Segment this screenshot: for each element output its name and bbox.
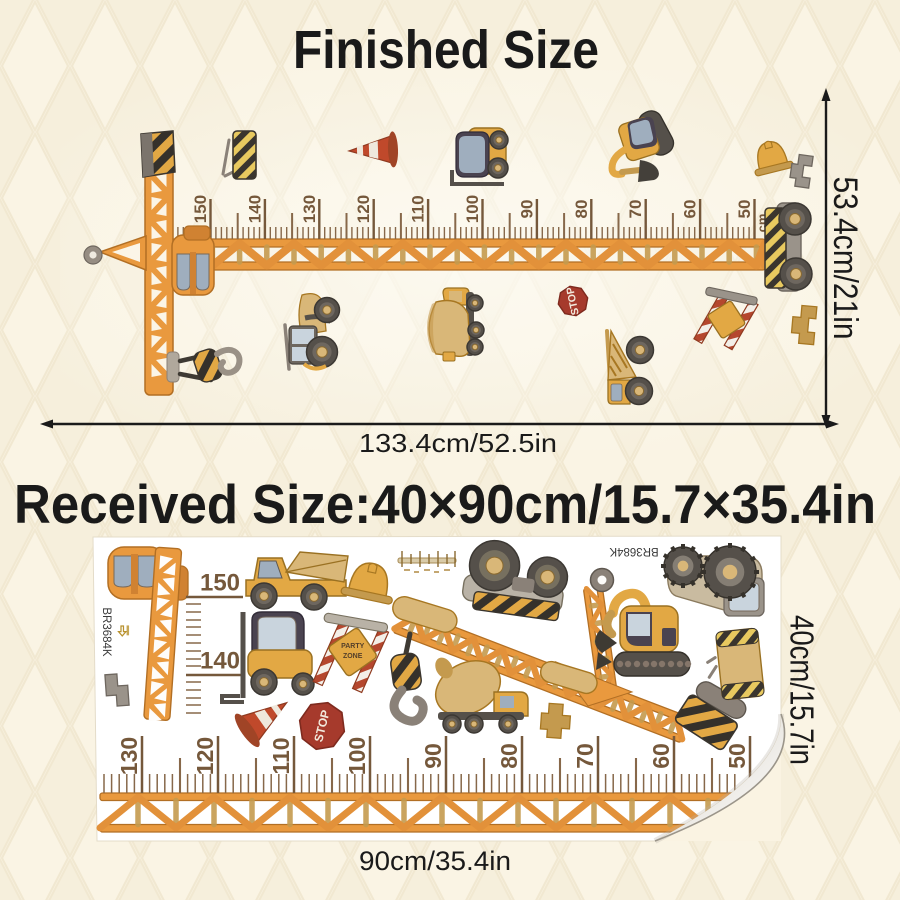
svg-text:80: 80 xyxy=(496,743,522,769)
svg-text:100: 100 xyxy=(344,737,370,775)
svg-text:100: 100 xyxy=(463,195,482,223)
svg-text:90: 90 xyxy=(517,200,536,219)
svg-text:PARTY: PARTY xyxy=(341,643,365,650)
svg-text:80: 80 xyxy=(572,200,591,219)
svg-text:60: 60 xyxy=(681,200,700,219)
svg-text:120: 120 xyxy=(354,195,373,223)
svg-text:110: 110 xyxy=(268,737,294,774)
svg-text:60: 60 xyxy=(648,743,674,769)
svg-text:120: 120 xyxy=(192,737,218,775)
svg-text:150: 150 xyxy=(191,195,210,223)
svg-text:70: 70 xyxy=(626,200,645,219)
svg-text:Received Size:40×90cm/15.7×35.: Received Size:40×90cm/15.7×35.4in xyxy=(14,473,876,535)
svg-text:133.4cm/52.5in: 133.4cm/52.5in xyxy=(359,428,557,458)
svg-text:50: 50 xyxy=(724,743,750,769)
svg-text:70: 70 xyxy=(572,743,598,769)
svg-text:BR3684K: BR3684K xyxy=(100,607,112,657)
svg-text:Finished Size: Finished Size xyxy=(293,20,599,80)
svg-text:110: 110 xyxy=(409,195,428,222)
svg-text:140: 140 xyxy=(245,195,264,223)
svg-text:140: 140 xyxy=(200,647,240,674)
svg-text:130: 130 xyxy=(300,195,319,223)
svg-text:40cm/15.7in: 40cm/15.7in xyxy=(784,615,821,765)
svg-text:90cm/35.4in: 90cm/35.4in xyxy=(359,846,511,876)
svg-text:90: 90 xyxy=(420,743,446,769)
svg-text:50: 50 xyxy=(735,200,754,219)
svg-text:ZONE: ZONE xyxy=(343,653,363,660)
svg-text:BR3684K: BR3684K xyxy=(609,545,659,557)
svg-text:130: 130 xyxy=(116,737,142,775)
svg-text:150: 150 xyxy=(200,569,240,596)
svg-text:53.4cm/21in: 53.4cm/21in xyxy=(826,177,864,340)
